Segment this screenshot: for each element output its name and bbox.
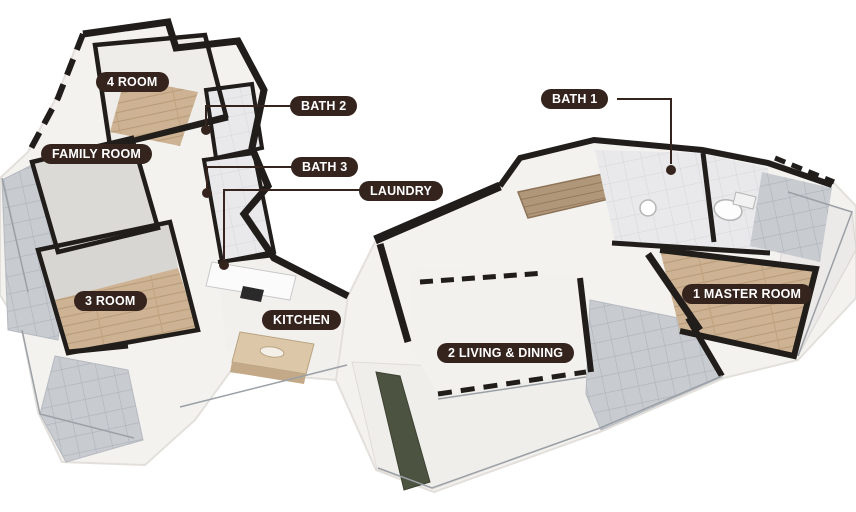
leader-dot-bath1 (666, 165, 676, 175)
label-kitchen: KITCHEN (262, 310, 341, 330)
floor-plan-image: 4 ROOM FAMILY ROOM BATH 2 BATH 3 LAUNDRY… (0, 0, 856, 512)
shower-tiles (750, 172, 832, 262)
bath1-basin (640, 200, 656, 216)
label-bath-3: BATH 3 (291, 157, 358, 177)
label-family-room: FAMILY ROOM (41, 144, 152, 164)
leader-dot-laundry (219, 260, 229, 270)
label-bath-2: BATH 2 (290, 96, 357, 116)
label-master-room: 1 MASTER ROOM (682, 284, 812, 304)
label-4-room: 4 ROOM (96, 72, 169, 92)
leader-dot-bath3 (202, 188, 212, 198)
label-bath-1: BATH 1 (541, 89, 608, 109)
leader-dot-bath2 (201, 125, 211, 135)
label-laundry: LAUNDRY (359, 181, 443, 201)
label-living-dining: 2 LIVING & DINING (437, 343, 574, 363)
label-3-room: 3 ROOM (74, 291, 147, 311)
